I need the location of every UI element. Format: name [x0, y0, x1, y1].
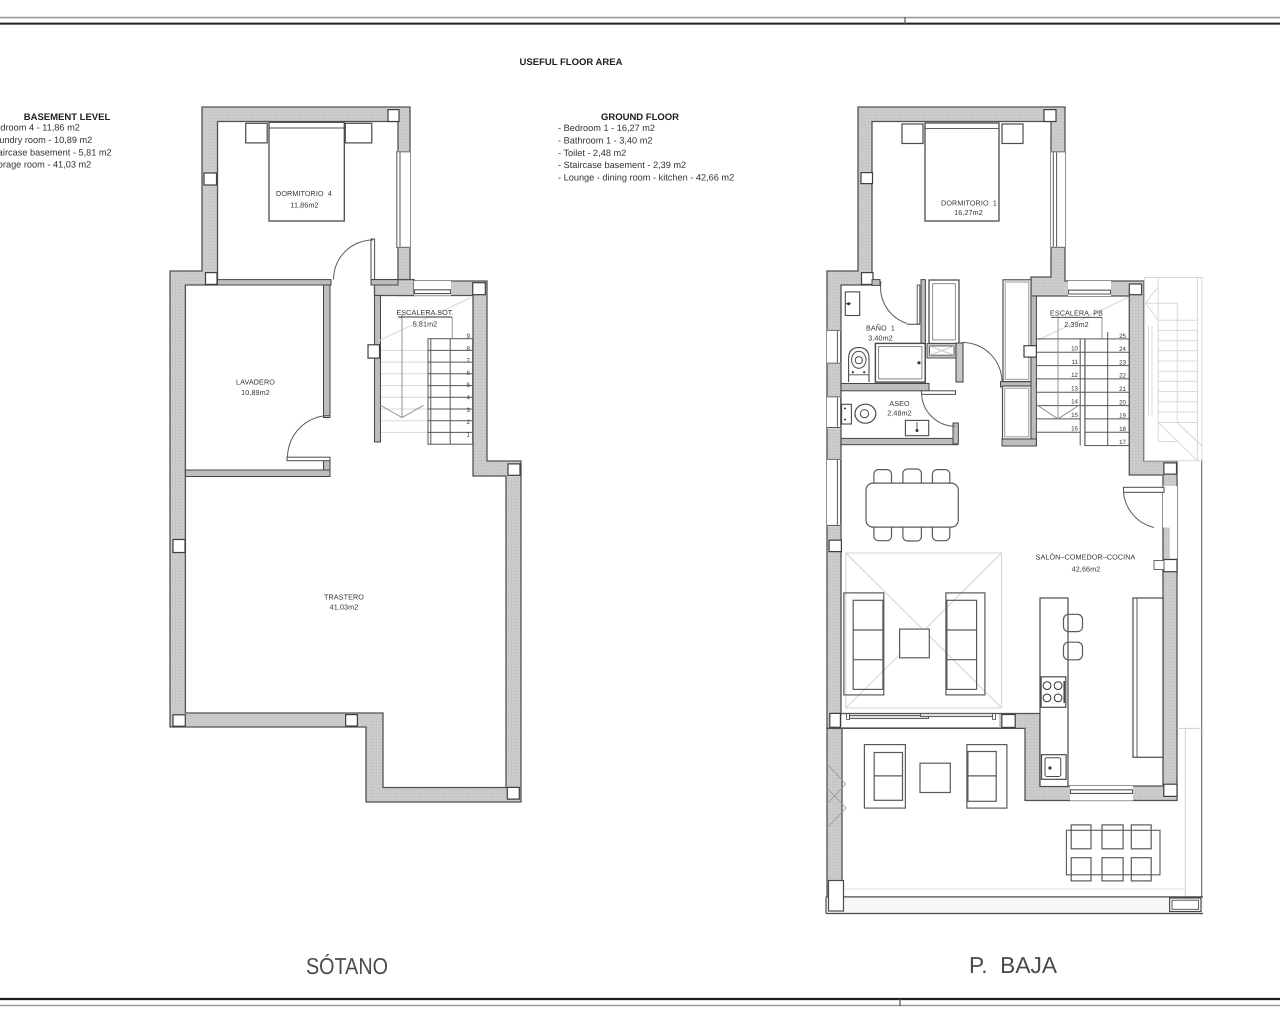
svg-text:GROUND FLOOR: GROUND FLOOR — [601, 112, 679, 123]
svg-text:8: 8 — [467, 345, 471, 352]
svg-text:16: 16 — [1071, 425, 1078, 432]
svg-text:23: 23 — [1119, 359, 1126, 366]
svg-text:DORMITORIO 4: DORMITORIO 4 — [276, 189, 332, 198]
svg-text:ESCALERA SOT.: ESCALERA SOT. — [396, 308, 453, 317]
svg-text:16,27m2: 16,27m2 — [954, 208, 983, 217]
svg-text:- Lounge - dining room - kitch: - Lounge - dining room - kitchen - 42,66… — [558, 172, 734, 182]
svg-text:SALÓN–COMEDOR–COCINA: SALÓN–COMEDOR–COCINA — [1036, 553, 1136, 562]
svg-text:22: 22 — [1119, 373, 1126, 380]
svg-text:10,89m2: 10,89m2 — [241, 388, 270, 397]
svg-text:- Staircase basement - 5,81 m2: - Staircase basement - 5,81 m2 — [0, 147, 112, 157]
svg-text:- Bathroom 1 - 3,40 m2: - Bathroom 1 - 3,40 m2 — [558, 136, 652, 146]
svg-text:25: 25 — [1119, 333, 1126, 340]
svg-text:P. BAJA: P. BAJA — [969, 952, 1058, 978]
svg-text:11: 11 — [1072, 359, 1079, 366]
svg-text:41,03m2: 41,03m2 — [330, 603, 359, 612]
svg-text:10: 10 — [1071, 346, 1078, 353]
svg-text:11,86m2: 11,86m2 — [290, 201, 318, 210]
svg-text:17: 17 — [1119, 439, 1126, 446]
svg-text:SÓTANO: SÓTANO — [306, 953, 388, 979]
svg-text:- Laundry room - 10,89 m2: - Laundry room - 10,89 m2 — [0, 135, 92, 145]
svg-text:14: 14 — [1071, 399, 1078, 406]
svg-text:18: 18 — [1119, 426, 1126, 433]
svg-text:- Bedroom 4 - 11,86 m2: - Bedroom 4 - 11,86 m2 — [0, 123, 80, 133]
svg-text:ESCALERA PB: ESCALERA PB — [1050, 308, 1103, 317]
svg-text:4: 4 — [467, 395, 471, 402]
svg-text:24: 24 — [1119, 346, 1126, 353]
svg-text:19: 19 — [1119, 413, 1126, 420]
svg-text:BAÑO 1: BAÑO 1 — [866, 324, 895, 333]
svg-text:LAVADERO: LAVADERO — [236, 378, 275, 387]
svg-text:TRASTERO: TRASTERO — [324, 593, 364, 602]
svg-text:9: 9 — [467, 333, 471, 340]
svg-text:- Storage room - 41,03 m2: - Storage room - 41,03 m2 — [0, 160, 91, 170]
svg-text:5,81m2: 5,81m2 — [413, 320, 438, 329]
svg-text:13: 13 — [1071, 385, 1078, 392]
svg-text:5: 5 — [467, 382, 471, 389]
svg-text:15: 15 — [1071, 412, 1078, 419]
svg-text:21: 21 — [1119, 386, 1126, 393]
svg-text:USEFUL FLOOR AREA: USEFUL FLOOR AREA — [520, 57, 623, 68]
svg-text:- Staircase basement - 2,39 m2: - Staircase basement - 2,39 m2 — [558, 160, 686, 170]
svg-text:3,40m2: 3,40m2 — [868, 333, 893, 342]
svg-text:2: 2 — [467, 419, 471, 426]
svg-text:2,39m2: 2,39m2 — [1064, 320, 1089, 329]
svg-text:DORMITORIO 1: DORMITORIO 1 — [941, 199, 997, 208]
svg-text:7: 7 — [467, 358, 471, 365]
svg-text:ASEO: ASEO — [889, 399, 910, 408]
svg-text:42,66m2: 42,66m2 — [1072, 565, 1101, 574]
svg-text:20: 20 — [1119, 399, 1126, 406]
svg-text:- Bedroom 1 - 16,27 m2: - Bedroom 1 - 16,27 m2 — [558, 123, 655, 133]
svg-text:- Toilet - 2,48 m2: - Toilet - 2,48 m2 — [558, 148, 626, 158]
svg-text:2,48m2: 2,48m2 — [887, 409, 912, 418]
svg-text:BASEMENT LEVEL: BASEMENT LEVEL — [24, 112, 111, 123]
svg-text:1: 1 — [467, 431, 471, 438]
svg-text:12: 12 — [1071, 372, 1078, 379]
svg-text:3: 3 — [467, 407, 471, 414]
svg-text:6: 6 — [467, 370, 471, 377]
